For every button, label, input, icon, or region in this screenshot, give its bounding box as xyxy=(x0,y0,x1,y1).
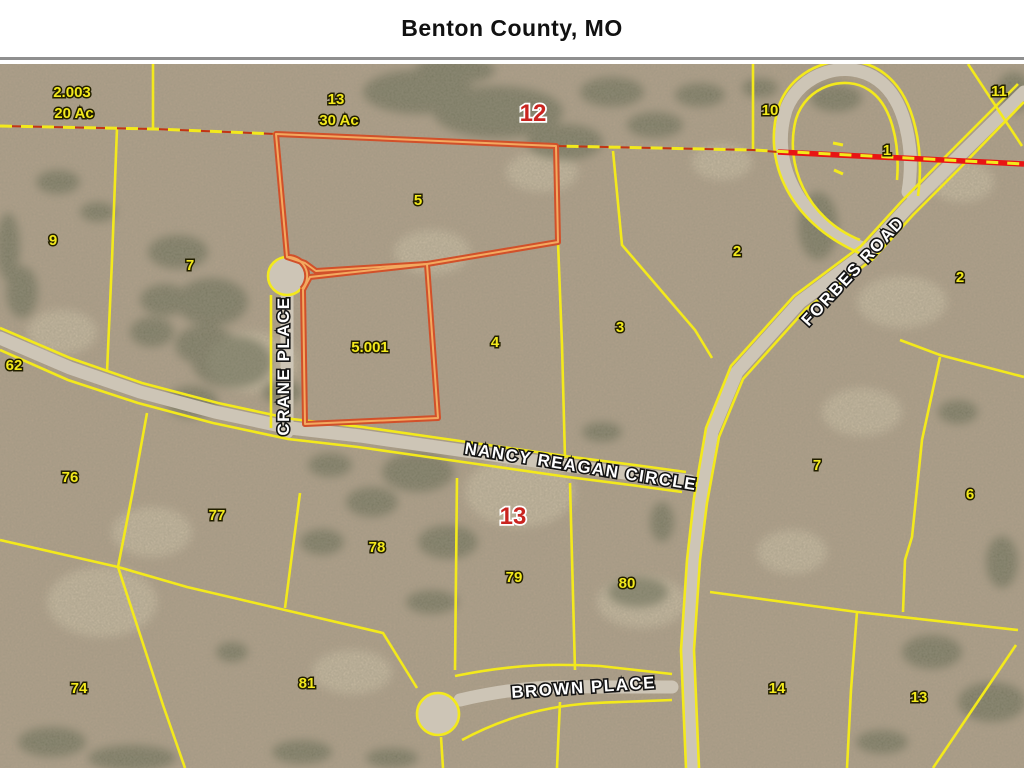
parcel-number-label: 78 xyxy=(369,539,386,556)
parcel-number-label: 80 xyxy=(619,575,636,592)
map-area[interactable]: CRANE PLACENANCY REAGAN CIRCLEFORBES ROA… xyxy=(0,64,1024,768)
parcel-number-label: 1 xyxy=(883,142,891,159)
parcel-number-label: 20 Ac xyxy=(54,105,93,122)
parcel-number-label: 2 xyxy=(733,243,741,260)
parcel-number-label: 11 xyxy=(991,83,1007,100)
parcel-number-label: 7 xyxy=(186,257,194,274)
parcel-number-label: 14 xyxy=(769,680,786,697)
aerial-terrain xyxy=(0,64,1024,768)
parcel-number-label: 5 xyxy=(414,192,422,209)
parcel-number-label: 79 xyxy=(506,569,523,586)
parcel-number-label: 13 xyxy=(328,91,345,108)
parcel-number-label: 77 xyxy=(209,507,226,524)
parcel-number-label: 74 xyxy=(71,680,88,697)
page-title: Benton County, MO xyxy=(401,15,622,42)
section-number-label: 13 xyxy=(500,503,527,530)
map-viewer-screenshot: Benton County, MO xyxy=(0,0,1024,768)
parcel-number-label: 4 xyxy=(491,334,500,351)
parcel-number-label: 30 Ac xyxy=(319,112,358,129)
parcel-number-label: 6 xyxy=(966,486,974,503)
parcel-number-label: 62 xyxy=(6,357,23,374)
parcel-number-label: 7 xyxy=(813,457,821,474)
road-name-label: CRANE PLACE xyxy=(274,296,293,435)
parcel-number-label: 3 xyxy=(616,319,624,336)
parcel-map-svg[interactable]: CRANE PLACENANCY REAGAN CIRCLEFORBES ROA… xyxy=(0,64,1024,768)
section-number-label: 12 xyxy=(520,100,547,127)
parcel-number-label: 10 xyxy=(762,102,779,119)
parcel-number-label: 9 xyxy=(49,232,57,249)
parcel-number-label: 76 xyxy=(62,469,79,486)
parcel-number-label: 2 xyxy=(956,269,964,286)
parcel-number-label: 13 xyxy=(911,689,928,706)
parcel-number-label: 5.001 xyxy=(351,339,389,356)
terrain-noise xyxy=(0,64,1024,768)
parcel-number-label: 81 xyxy=(299,675,316,692)
parcel-number-label: 2.003 xyxy=(53,84,91,101)
map-header: Benton County, MO xyxy=(0,0,1024,60)
